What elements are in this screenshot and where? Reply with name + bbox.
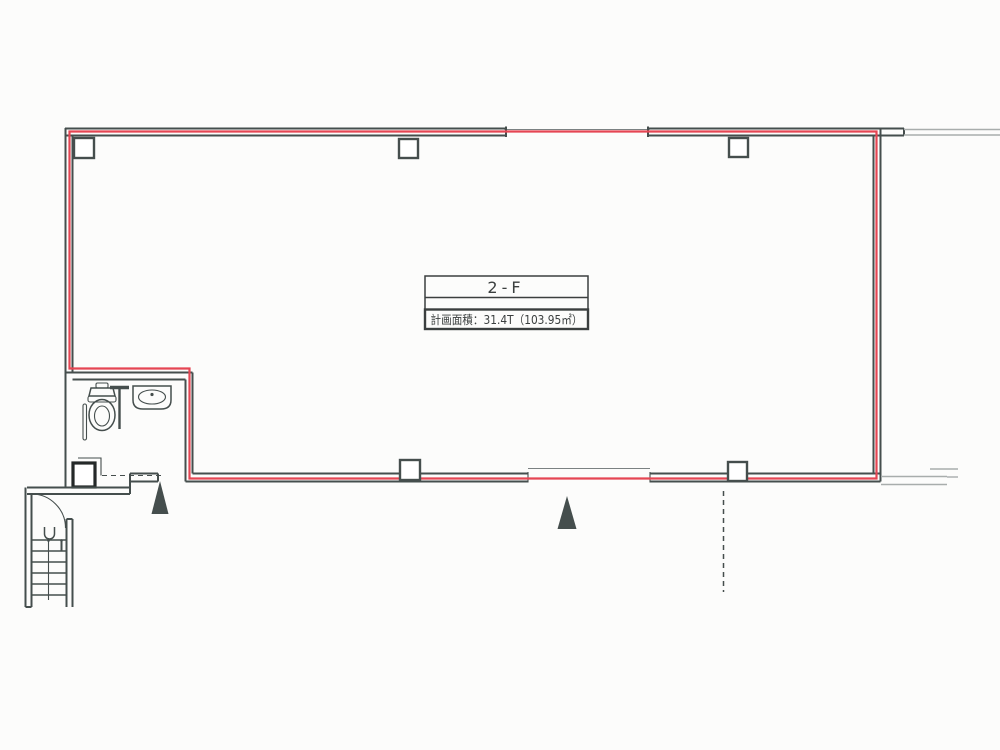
paper-background [0,0,1000,750]
column-symbol [73,463,95,487]
floor-plan-drawing: 2-F 計画面積：31.4T（103.95㎡） [0,0,1000,750]
column-symbol [400,460,420,480]
floor-plan-sheet: 2-F 計画面積：31.4T（103.95㎡） [0,0,1000,750]
column-symbol [729,138,748,157]
column-symbol [399,139,418,158]
area-label: 計画面積：31.4T（103.95㎡） [431,312,583,327]
floor-label: 2-F [487,278,524,297]
column-symbol [74,138,94,158]
column-symbol [728,462,747,481]
